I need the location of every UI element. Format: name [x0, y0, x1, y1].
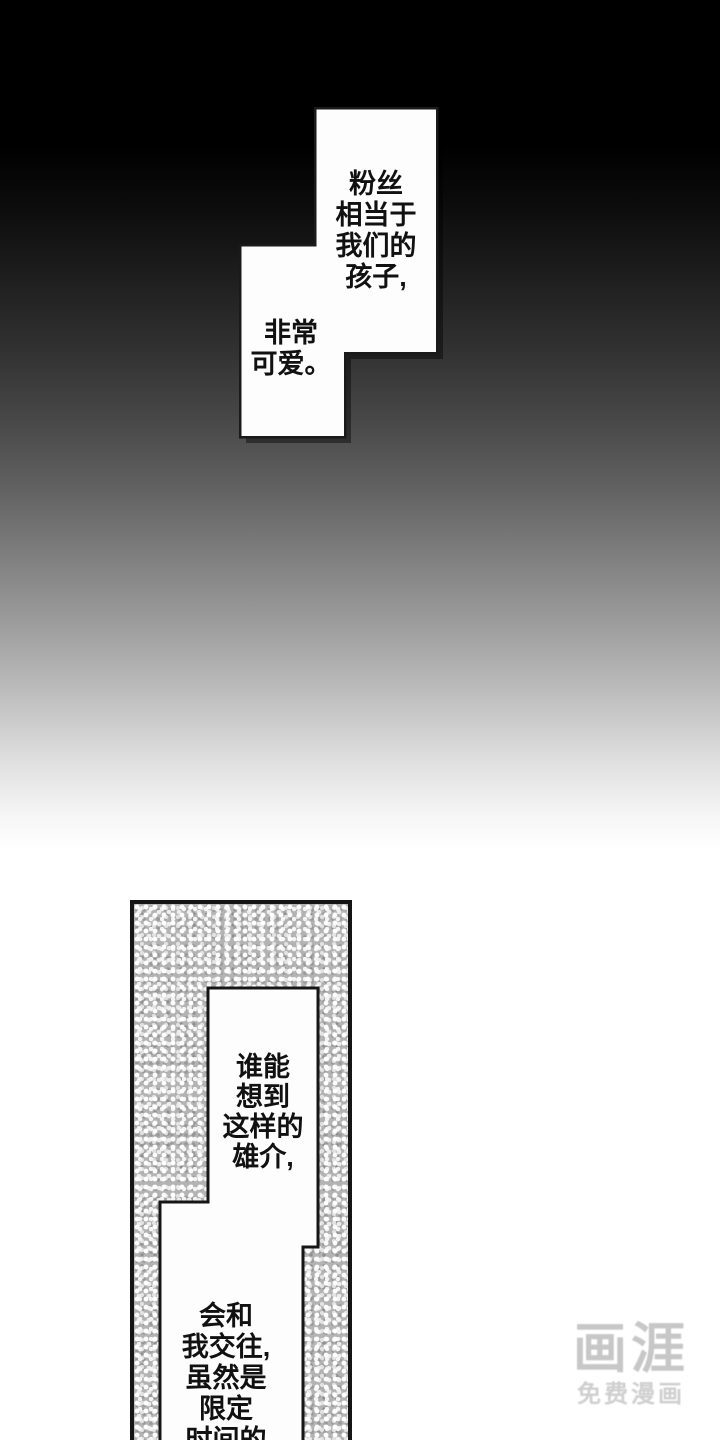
- comic-page: 粉丝 相当于 我们的 孩子, 非常 可爱。 谁能 想到 这样的 雄介, 会和 我…: [0, 0, 720, 1440]
- speech-line: 非常: [251, 318, 332, 349]
- speech-line: 可爱。: [251, 349, 332, 380]
- speech-line: 雄介,: [223, 1142, 304, 1172]
- speech-line: 谁能: [223, 1052, 304, 1082]
- speech-line: 会和: [182, 1301, 271, 1332]
- speech-line: 限定: [182, 1394, 271, 1425]
- speech-text-date: 会和 我交往, 虽然是 限定 时间的: [182, 1301, 271, 1440]
- speech-line: 相当于: [336, 200, 417, 231]
- speech-line: 这样的: [223, 1112, 304, 1142]
- speech-line: 我交往,: [182, 1332, 271, 1363]
- speech-line: 虽然是: [182, 1363, 271, 1394]
- watermark-subtitle: 免费漫画: [573, 1383, 689, 1407]
- speech-text-who: 谁能 想到 这样的 雄介,: [223, 1052, 304, 1172]
- watermark-logo: 画涯: [573, 1322, 689, 1376]
- watermark: 画涯 免费漫画: [573, 1322, 689, 1407]
- speech-line: 粉丝: [336, 169, 417, 200]
- speech-line: 时间的: [182, 1425, 271, 1440]
- speech-line: 想到: [223, 1082, 304, 1112]
- speech-line: 我们的: [336, 231, 417, 262]
- speech-text-fans: 粉丝 相当于 我们的 孩子,: [336, 169, 417, 293]
- speech-line: 孩子,: [336, 262, 417, 293]
- speech-text-cute: 非常 可爱。: [251, 318, 332, 380]
